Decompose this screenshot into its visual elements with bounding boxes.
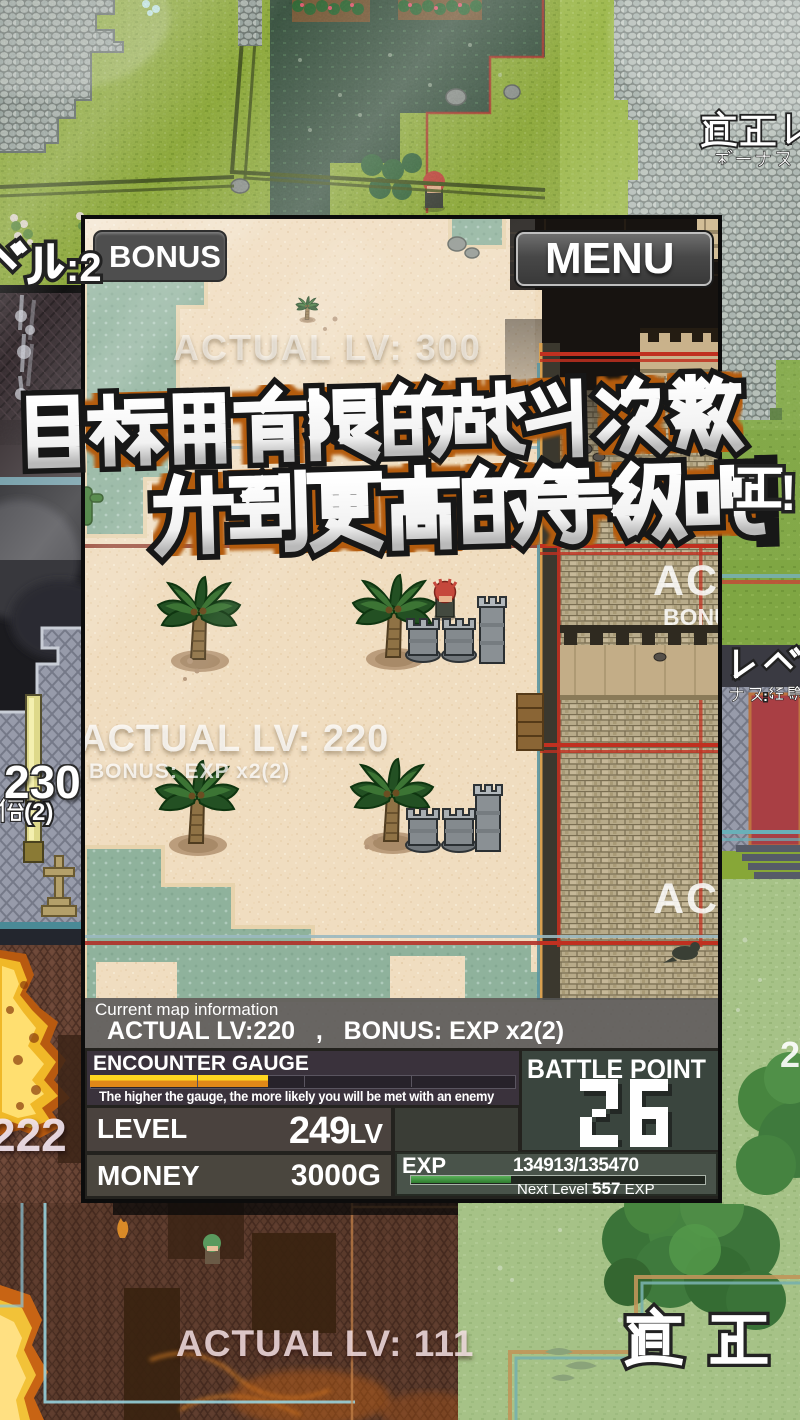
svg-text:!: ! bbox=[780, 465, 797, 521]
svg-text::: : bbox=[763, 688, 768, 705]
svg-text::2: :2 bbox=[66, 246, 102, 290]
